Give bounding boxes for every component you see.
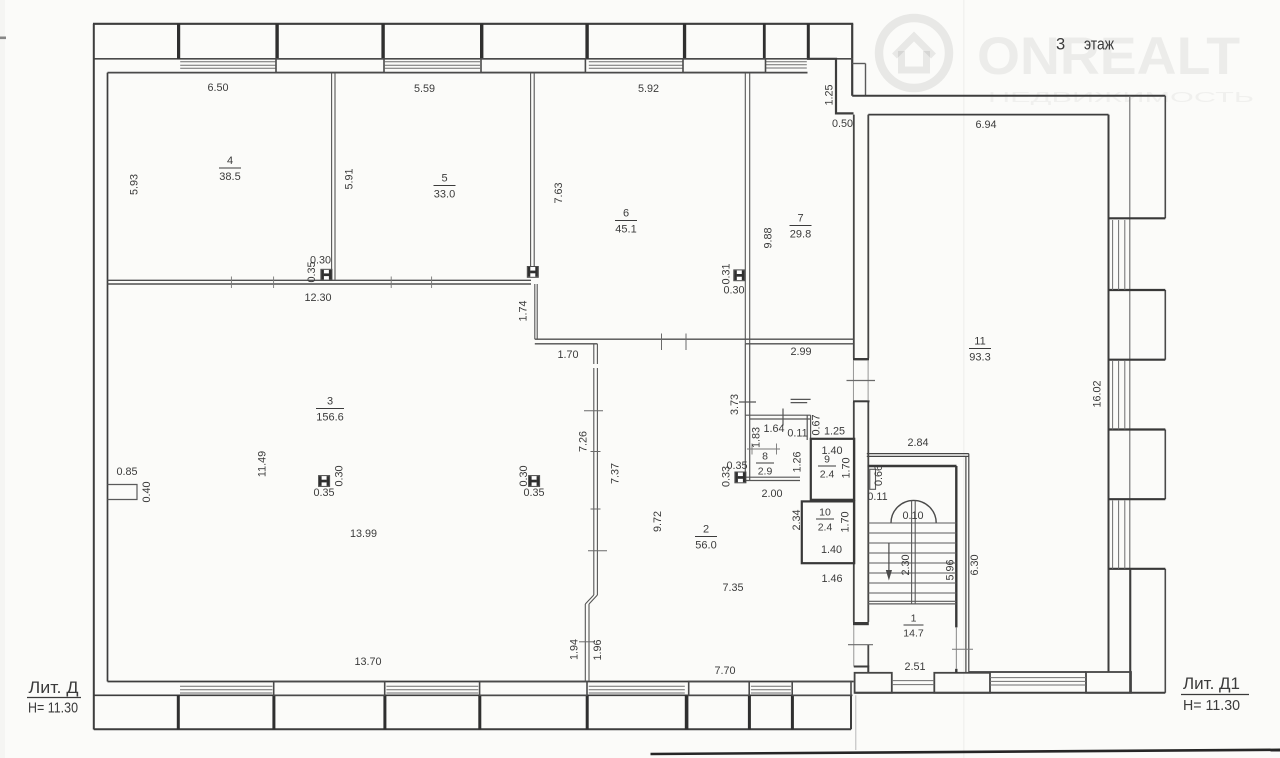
svg-text:7.70: 7.70 bbox=[714, 665, 735, 677]
svg-text:5.92: 5.92 bbox=[638, 83, 659, 95]
svg-text:2.4: 2.4 bbox=[820, 469, 835, 481]
svg-text:6.94: 6.94 bbox=[975, 119, 996, 131]
svg-text:этаж: этаж bbox=[1084, 36, 1114, 54]
svg-text:1: 1 bbox=[911, 613, 917, 625]
svg-text:3: 3 bbox=[1056, 36, 1065, 54]
svg-text:1.96: 1.96 bbox=[592, 639, 604, 660]
svg-text:3: 3 bbox=[327, 396, 333, 408]
svg-text:1.46: 1.46 bbox=[821, 573, 842, 585]
svg-text:12.30: 12.30 bbox=[304, 292, 331, 304]
svg-text:2.84: 2.84 bbox=[907, 437, 928, 449]
svg-text:0.30: 0.30 bbox=[723, 285, 744, 297]
svg-text:6: 6 bbox=[623, 208, 629, 220]
svg-text:4: 4 bbox=[227, 155, 233, 167]
svg-text:Лит. Д1: Лит. Д1 bbox=[1183, 674, 1240, 693]
svg-text:0.11: 0.11 bbox=[867, 491, 887, 503]
svg-text:156.6: 156.6 bbox=[316, 412, 344, 424]
svg-text:НЕДВИЖИМОСТЬ: НЕДВИЖИМОСТЬ bbox=[988, 90, 1254, 106]
svg-text:7.63: 7.63 bbox=[553, 182, 565, 203]
svg-text:2: 2 bbox=[703, 524, 709, 536]
svg-text:6.50: 6.50 bbox=[207, 82, 228, 94]
svg-text:6.30: 6.30 bbox=[969, 554, 981, 575]
svg-text:11.49: 11.49 bbox=[257, 451, 269, 477]
svg-text:1.94: 1.94 bbox=[569, 639, 581, 660]
svg-text:0.85: 0.85 bbox=[116, 466, 137, 478]
svg-text:0.10: 0.10 bbox=[902, 510, 923, 522]
svg-text:2.51: 2.51 bbox=[904, 661, 925, 673]
svg-text:5.59: 5.59 bbox=[414, 83, 435, 95]
svg-text:56.0: 56.0 bbox=[695, 540, 716, 552]
svg-text:2.34: 2.34 bbox=[791, 509, 803, 530]
svg-text:1.26: 1.26 bbox=[792, 451, 804, 472]
svg-text:0.66: 0.66 bbox=[873, 465, 885, 486]
svg-text:0.67: 0.67 bbox=[811, 414, 823, 435]
svg-text:0.31: 0.31 bbox=[721, 263, 733, 284]
svg-text:2.9: 2.9 bbox=[758, 466, 773, 478]
svg-text:1.40: 1.40 bbox=[821, 544, 842, 556]
svg-text:5.93: 5.93 bbox=[129, 174, 141, 195]
svg-text:0.35: 0.35 bbox=[306, 261, 318, 282]
svg-text:7.35: 7.35 bbox=[722, 582, 743, 594]
svg-text:16.02: 16.02 bbox=[1092, 380, 1104, 407]
svg-text:0.35: 0.35 bbox=[313, 487, 334, 499]
svg-text:Н= 11.30: Н= 11.30 bbox=[28, 700, 78, 717]
svg-text:3.73: 3.73 bbox=[729, 394, 741, 415]
svg-text:13.70: 13.70 bbox=[354, 656, 381, 668]
svg-text:9: 9 bbox=[824, 454, 830, 466]
svg-text:Лит. Д: Лит. Д bbox=[29, 678, 80, 697]
svg-text:93.3: 93.3 bbox=[969, 352, 990, 364]
svg-text:8: 8 bbox=[762, 451, 768, 463]
svg-text:11: 11 bbox=[974, 336, 985, 348]
svg-text:1.70: 1.70 bbox=[840, 511, 852, 532]
svg-text:1.70: 1.70 bbox=[557, 349, 578, 361]
svg-text:1.25: 1.25 bbox=[824, 426, 845, 438]
svg-text:5.96: 5.96 bbox=[945, 559, 957, 580]
svg-text:2.4: 2.4 bbox=[818, 522, 833, 534]
svg-text:1.64: 1.64 bbox=[763, 423, 784, 435]
svg-text:9.72: 9.72 bbox=[652, 511, 664, 532]
svg-text:1.74: 1.74 bbox=[518, 300, 530, 321]
svg-text:7.26: 7.26 bbox=[578, 431, 590, 452]
svg-text:0.40: 0.40 bbox=[141, 481, 153, 502]
svg-text:14.7: 14.7 bbox=[903, 628, 924, 640]
svg-text:0.30: 0.30 bbox=[518, 465, 530, 486]
svg-text:5: 5 bbox=[441, 173, 447, 185]
svg-text:9.88: 9.88 bbox=[763, 227, 775, 248]
svg-text:Н= 11.30: Н= 11.30 bbox=[1183, 697, 1240, 714]
svg-text:7.37: 7.37 bbox=[610, 463, 622, 484]
svg-text:0.35: 0.35 bbox=[523, 487, 544, 499]
svg-text:1.25: 1.25 bbox=[824, 84, 836, 105]
svg-text:1.70: 1.70 bbox=[841, 457, 853, 478]
svg-text:29.8: 29.8 bbox=[790, 229, 811, 241]
svg-text:33.0: 33.0 bbox=[434, 189, 455, 201]
svg-text:2.00: 2.00 bbox=[761, 488, 782, 500]
svg-text:0.11: 0.11 bbox=[787, 428, 807, 440]
svg-text:10: 10 bbox=[819, 507, 831, 519]
svg-text:13.99: 13.99 bbox=[350, 528, 377, 540]
svg-text:2.30: 2.30 bbox=[900, 554, 912, 575]
svg-text:38.5: 38.5 bbox=[219, 171, 240, 183]
svg-text:7: 7 bbox=[797, 213, 803, 225]
svg-text:2.99: 2.99 bbox=[790, 346, 811, 358]
svg-text:1.83: 1.83 bbox=[751, 427, 763, 448]
svg-text:0.30: 0.30 bbox=[334, 465, 346, 486]
svg-text:5.91: 5.91 bbox=[344, 168, 356, 189]
svg-text:0.33: 0.33 bbox=[721, 466, 733, 487]
svg-text:0.50: 0.50 bbox=[832, 118, 853, 130]
svg-text:45.1: 45.1 bbox=[615, 224, 636, 236]
